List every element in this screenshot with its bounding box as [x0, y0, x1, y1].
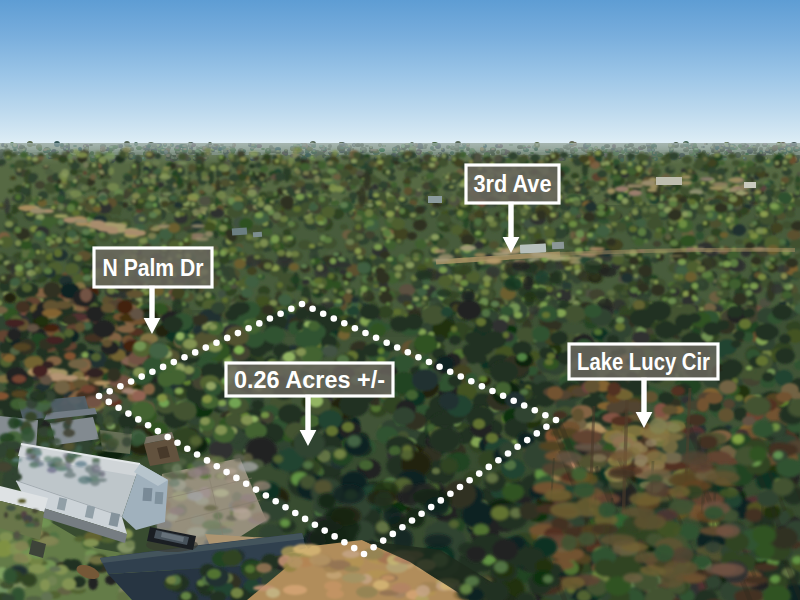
svg-text:N Palm Dr: N Palm Dr	[103, 255, 204, 281]
svg-text:Lake Lucy Cir: Lake Lucy Cir	[577, 349, 710, 375]
svg-text:3rd Ave: 3rd Ave	[474, 171, 552, 197]
svg-text:0.26 Acres +/-: 0.26 Acres +/-	[234, 367, 385, 393]
